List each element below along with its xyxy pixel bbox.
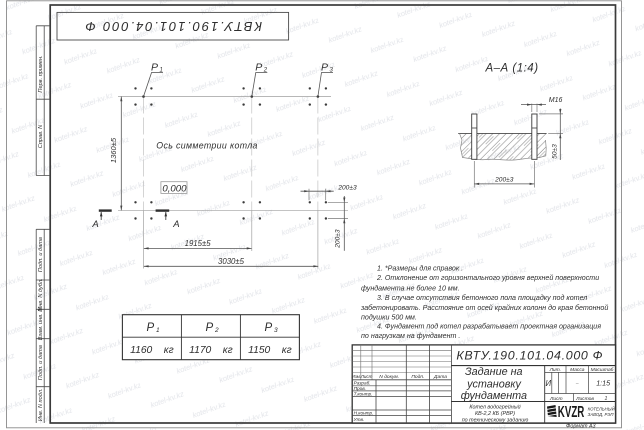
svg-text:A: A	[91, 219, 98, 230]
svg-text:P: P	[265, 322, 273, 334]
svg-text:КОТЕЛЬНЫЙ: КОТЕЛЬНЫЙ	[588, 407, 616, 412]
svg-text:2: 2	[263, 68, 268, 74]
svg-text:N докум.: N докум.	[379, 374, 399, 380]
svg-text:200±3: 200±3	[337, 185, 357, 192]
svg-text:200±3: 200±3	[335, 229, 342, 249]
svg-text:Инв. N дубл.: Инв. N дубл.	[38, 278, 44, 310]
svg-text:Разраб.: Разраб.	[354, 381, 371, 386]
svg-text:P: P	[147, 322, 155, 334]
svg-text:М16: М16	[549, 97, 563, 104]
svg-text:забетонировать. Расстояние от: забетонировать. Расстояние от осей крайн…	[360, 304, 608, 312]
svg-text:1: 1	[156, 327, 160, 334]
svg-text:Перв. примен.: Перв. примен.	[38, 55, 44, 92]
svg-text:Котел водогрейный: Котел водогрейный	[469, 403, 520, 410]
svg-text:установку: установку	[466, 378, 521, 390]
svg-text:P: P	[321, 61, 328, 73]
svg-text:P: P	[255, 61, 262, 73]
svg-text:КВ-2,2 КБ (РВР): КВ-2,2 КБ (РВР)	[475, 411, 515, 417]
svg-text:0,000: 0,000	[162, 183, 187, 194]
svg-text:Ось симметрии котла: Ось симметрии котла	[156, 141, 258, 151]
svg-text:Дата: Дата	[433, 374, 447, 380]
svg-text:3. В случае отсутствия бетонно: 3. В случае отсутствия бетонного пола пл…	[377, 294, 587, 302]
svg-text:1160 кг: 1160 кг	[130, 345, 174, 356]
svg-text:Листов: Листов	[575, 396, 594, 402]
svg-text:КВТУ.190.101.04.000 Ф: КВТУ.190.101.04.000 Ф	[456, 348, 603, 362]
svg-text:фундамента: фундамента	[461, 390, 527, 402]
svg-text:фундамента не более 10 мм.: фундамента не более 10 мм.	[361, 285, 460, 293]
svg-text:подушки 500 мм.: подушки 500 мм.	[361, 314, 417, 322]
svg-text:200±3: 200±3	[494, 176, 514, 183]
svg-text:Изм.: Изм.	[351, 374, 361, 379]
svg-text:1915±5: 1915±5	[185, 239, 212, 248]
svg-text:Взам. инв. N: Взам. инв. N	[38, 307, 44, 341]
svg-text:Н.контр.: Н.контр.	[354, 411, 374, 416]
svg-text:И: И	[546, 379, 552, 388]
svg-text:50±3: 50±3	[552, 144, 559, 159]
svg-text:Т.контр.: Т.контр.	[354, 392, 373, 397]
svg-text:по техническому заданию: по техническому заданию	[462, 417, 529, 423]
svg-text:А–А (1:4): А–А (1:4)	[484, 63, 538, 75]
svg-text:Пров.: Пров.	[354, 386, 366, 391]
svg-text:2. Отклонение от горизонтально: 2. Отклонение от горизонтального уровня …	[376, 274, 599, 282]
svg-text:3030±5: 3030±5	[218, 257, 245, 266]
svg-text:1170 кг: 1170 кг	[189, 345, 233, 356]
svg-text:3: 3	[274, 327, 278, 334]
svg-text:1: 1	[160, 68, 163, 74]
svg-text:1: 1	[605, 396, 608, 402]
svg-text:КВТУ.190.101.04.000 Ф: КВТУ.190.101.04.000 Ф	[84, 19, 263, 34]
svg-text:Лист: Лист	[549, 396, 563, 402]
svg-text:Формат А3: Формат А3	[566, 423, 596, 429]
svg-text:4. Фундамент под котел разраба: 4. Фундамент под котел разрабатывает про…	[377, 323, 601, 331]
svg-text:1:15: 1:15	[596, 379, 611, 388]
svg-text:Задание на: Задание на	[465, 366, 523, 378]
svg-text:Подп.: Подп.	[411, 374, 424, 380]
svg-text:–: –	[575, 382, 579, 387]
svg-text:по нагрузкам на фундамент .: по нагрузкам на фундамент .	[361, 332, 460, 340]
svg-text:Справ. N: Справ. N	[38, 124, 44, 148]
svg-text:1. *Размеры для справок .: 1. *Размеры для справок .	[377, 264, 463, 272]
svg-text:Масштаб: Масштаб	[591, 367, 614, 373]
svg-text:2: 2	[214, 327, 219, 334]
svg-text:Лист: Лист	[360, 374, 373, 379]
svg-text:ЗАВОД, РЭП: ЗАВОД, РЭП	[588, 412, 615, 417]
svg-text:P: P	[151, 61, 158, 73]
svg-text:Утв.: Утв.	[354, 417, 365, 422]
svg-text:Подп. и дата: Подп. и дата	[38, 345, 44, 380]
svg-text:1150 кг: 1150 кг	[248, 345, 292, 356]
svg-text:Инв. N подл.: Инв. N подл.	[38, 388, 44, 421]
svg-text:1360±5: 1360±5	[109, 137, 118, 163]
svg-text:KVZR: KVZR	[558, 404, 585, 421]
svg-text:P: P	[206, 322, 214, 334]
svg-text:Лит.: Лит.	[549, 367, 561, 373]
svg-text:Масса: Масса	[570, 367, 585, 373]
svg-text:A: A	[172, 219, 179, 230]
svg-text:Подп. и дата: Подп. и дата	[38, 237, 44, 272]
